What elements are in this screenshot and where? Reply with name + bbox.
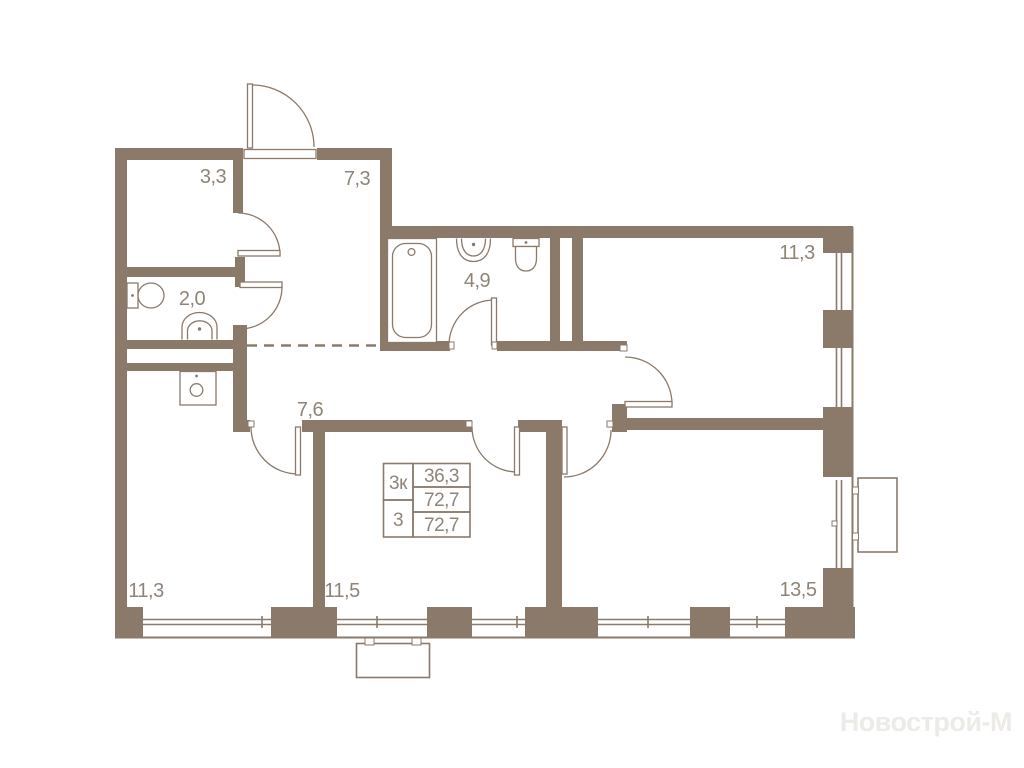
sink-icon-bathroom (457, 239, 491, 262)
watermark: Новострой-М (840, 707, 1012, 737)
bathtub-icon (388, 239, 437, 343)
door-leaf-wc (240, 282, 282, 288)
room-label-bathroom: 4,9 (464, 270, 491, 292)
info-table: 3к 3 36,3 72,7 72,7 (384, 464, 471, 538)
walls (115, 148, 855, 638)
fixtures (127, 239, 539, 406)
room-label-bedroom-bottom-left: 11,3 (128, 580, 164, 602)
room-label-bedroom-top-right: 11,3 (779, 242, 815, 264)
info-total-area: 72,7 (424, 515, 459, 536)
room-label-entry-hall: 7,3 (344, 168, 371, 190)
info-area-mid: 72,7 (424, 490, 459, 511)
info-type-label: 3к (389, 473, 408, 494)
door-leaf-bedroom-bottom-left (296, 427, 301, 475)
room-label-living-room: 13,5 (780, 579, 817, 601)
door-leaf-bedroom-top-right (625, 402, 672, 408)
balcony-door-handle (832, 521, 837, 526)
floor-plan: 3,3 7,3 2,0 4,9 11,3 7,6 11,3 11,5 13,5 … (0, 0, 1024, 768)
room-label-bedroom-middle: 11,5 (324, 580, 360, 602)
door-leaf-bathroom (492, 298, 497, 345)
room-label-hall-small: 3,3 (200, 166, 227, 188)
door-leaf-living-room (562, 427, 567, 474)
toilet-icon-bathroom (513, 239, 539, 272)
toilet-icon-wc (127, 283, 164, 308)
room-label-corridor: 7,6 (297, 399, 324, 421)
info-living-area: 36,3 (424, 466, 459, 487)
sink-icon-wc (182, 313, 217, 340)
entry-threshold (244, 150, 316, 159)
washing-machine-icon (180, 372, 216, 406)
door-leaf-bedroom-middle (515, 427, 520, 475)
ac-basket-bottom (357, 644, 430, 678)
info-rooms-count: 3 (393, 510, 403, 531)
entry-door-leaf (248, 84, 253, 148)
door-leaf-hall-small (238, 251, 280, 257)
ac-basket-east (858, 478, 897, 552)
room-label-wc: 2,0 (179, 288, 206, 310)
